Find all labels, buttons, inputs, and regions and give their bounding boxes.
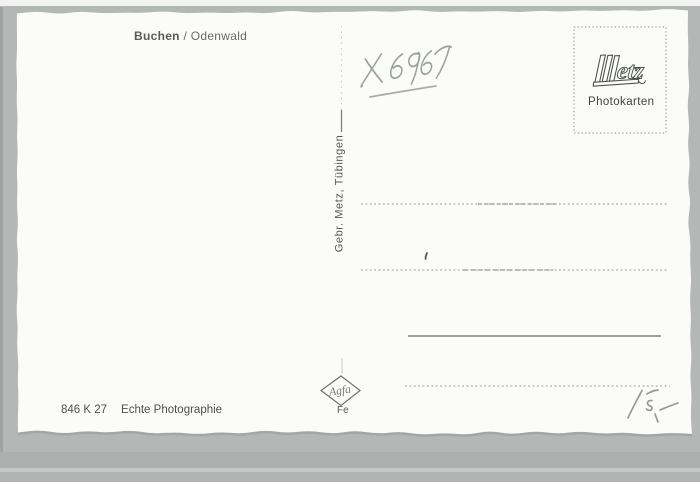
- svg-text:etz: etz: [616, 59, 646, 85]
- svg-text:Agfa: Agfa: [327, 384, 351, 399]
